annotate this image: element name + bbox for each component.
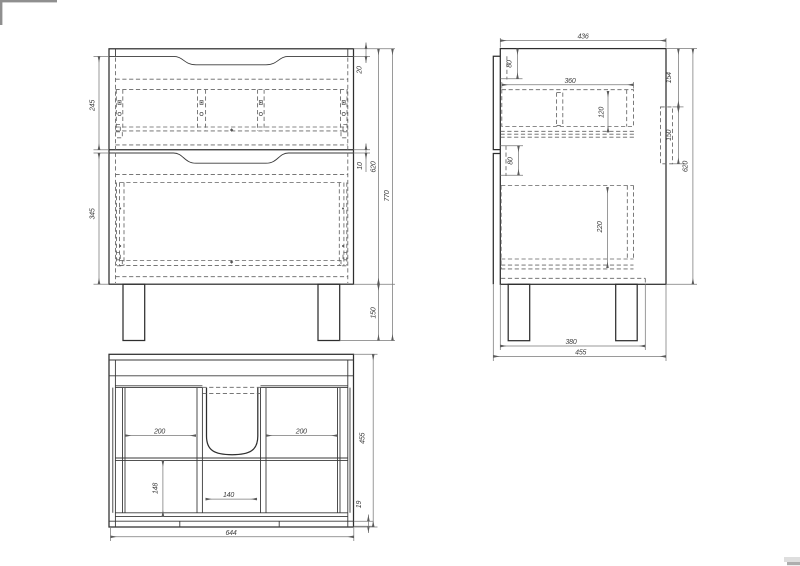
svg-text:455: 455 — [575, 349, 586, 356]
svg-text:150: 150 — [370, 307, 377, 318]
svg-text:20: 20 — [357, 66, 364, 75]
svg-text:80: 80 — [507, 60, 514, 68]
svg-text:770: 770 — [384, 190, 391, 201]
svg-text:140: 140 — [223, 492, 234, 499]
svg-text:620: 620 — [682, 161, 689, 172]
svg-text:120: 120 — [599, 107, 606, 118]
svg-text:620: 620 — [370, 161, 377, 172]
svg-text:455: 455 — [360, 432, 367, 443]
svg-text:345: 345 — [90, 208, 97, 219]
svg-text:245: 245 — [90, 100, 97, 112]
svg-text:360: 360 — [564, 78, 575, 85]
svg-text:220: 220 — [597, 221, 604, 233]
svg-text:436: 436 — [577, 33, 588, 40]
svg-text:644: 644 — [225, 530, 236, 537]
svg-text:148: 148 — [153, 483, 160, 494]
svg-text:10: 10 — [357, 162, 364, 170]
svg-text:80: 80 — [508, 157, 515, 165]
svg-text:154: 154 — [666, 72, 673, 83]
svg-text:19: 19 — [356, 501, 363, 509]
svg-text:200: 200 — [295, 429, 307, 436]
svg-text:200: 200 — [153, 429, 165, 436]
svg-text:380: 380 — [565, 339, 576, 346]
svg-text:150: 150 — [666, 129, 673, 140]
